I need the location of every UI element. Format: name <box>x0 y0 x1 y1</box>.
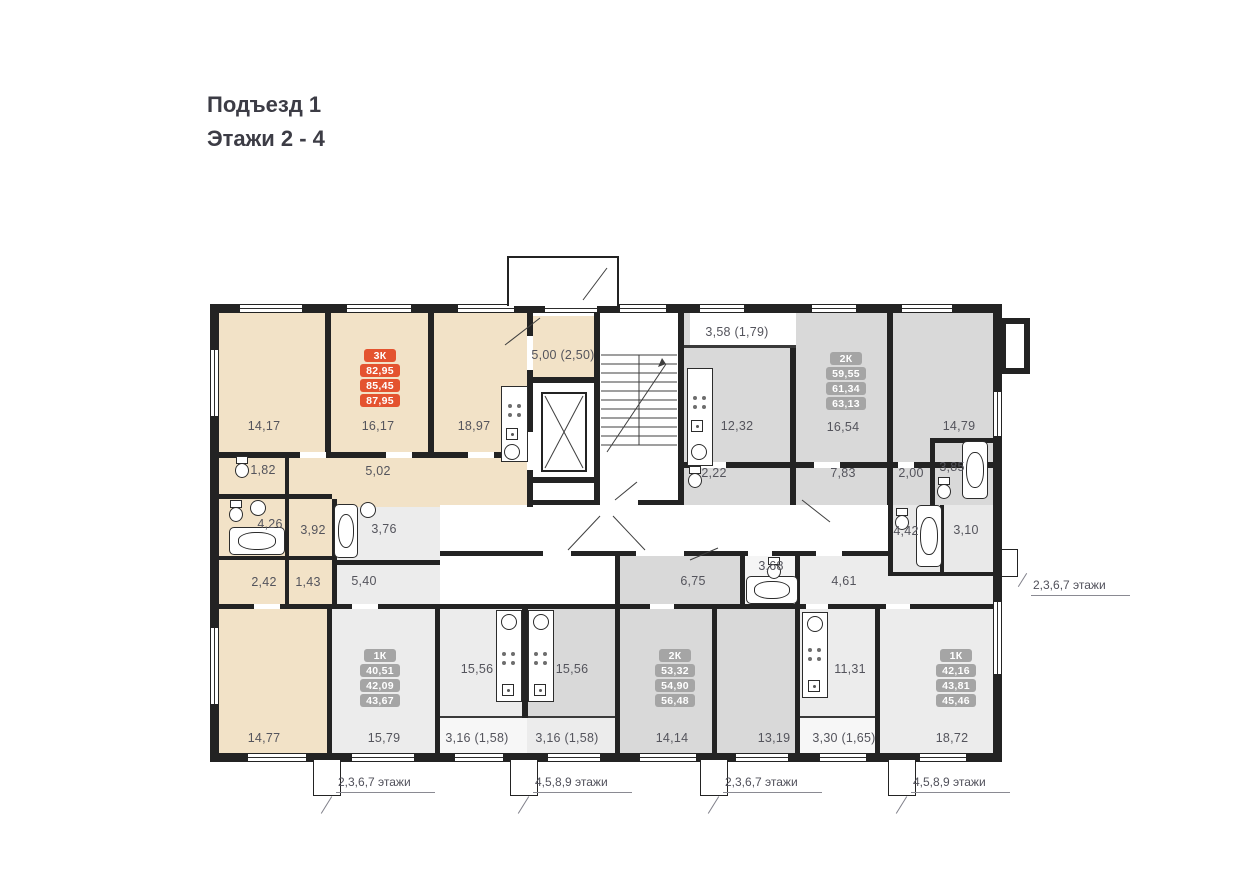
window <box>820 753 866 762</box>
apartment-area: 82,95 <box>360 364 400 377</box>
entrance-title: Подъезд 1 <box>207 88 325 122</box>
bathtub <box>916 505 942 567</box>
window <box>548 753 600 762</box>
apartment-type: 2К <box>830 352 862 365</box>
apartment-area: 42,16 <box>936 664 976 677</box>
stove-burners <box>808 648 812 652</box>
apartment-type: 2К <box>659 649 691 662</box>
door-opening <box>806 604 828 609</box>
window <box>920 753 966 762</box>
room-label: 5,40 <box>351 574 376 588</box>
wall <box>888 505 893 576</box>
floor-callout-label: 4,5,8,9 этажи <box>533 775 632 793</box>
window <box>352 753 414 762</box>
apartment-area: 40,51 <box>360 664 400 677</box>
room-label: 14,17 <box>248 419 281 433</box>
door-opening <box>543 551 571 556</box>
door-opening <box>816 551 842 556</box>
roof-outline-box <box>507 256 619 306</box>
room-label: 3,92 <box>300 523 325 537</box>
room-label: 4,61 <box>831 574 856 588</box>
wall <box>875 608 880 753</box>
callout-line <box>518 796 529 813</box>
apartment-type: 1К <box>940 649 972 662</box>
window <box>736 753 788 762</box>
room-label: 3,85 <box>939 460 964 474</box>
room-label: 1,43 <box>295 575 320 589</box>
door-opening <box>352 604 378 609</box>
wall <box>325 313 331 458</box>
room-label: 7,83 <box>830 466 855 480</box>
room-label: 5,02 <box>365 464 390 478</box>
window <box>620 304 666 313</box>
apartment-area: 42,09 <box>360 679 400 692</box>
wall <box>930 438 935 505</box>
balcony-rail <box>684 345 796 348</box>
bathtub <box>229 527 285 555</box>
room-label: 16,54 <box>827 420 860 434</box>
window <box>458 304 514 313</box>
wall <box>712 608 717 753</box>
room-label: 2,42 <box>251 575 276 589</box>
room-label: 14,79 <box>943 419 976 433</box>
apartment-badge-3k[interactable]: 3К 82,95 85,45 87,95 <box>360 349 400 407</box>
wall <box>332 560 440 565</box>
appliance <box>808 680 820 692</box>
window <box>455 753 503 762</box>
window <box>812 304 856 313</box>
apartment-area: 85,45 <box>360 379 400 392</box>
door-opening <box>254 604 280 609</box>
window <box>993 602 1002 674</box>
apartment-area: 54,90 <box>655 679 695 692</box>
apartment-type: 3К <box>364 349 396 362</box>
door-opening <box>468 452 494 458</box>
door-opening <box>386 452 412 458</box>
callout-line <box>321 796 332 813</box>
apartment-badge-2k-top[interactable]: 2К 59,55 61,34 63,13 <box>826 352 866 410</box>
callout-line <box>896 796 907 813</box>
wall <box>893 572 993 576</box>
apartment-type: 1К <box>364 649 396 662</box>
room-label: 18,72 <box>936 731 969 745</box>
floor-callout-label: 2,3,6,7 этажи <box>336 775 435 793</box>
shaft-box <box>1000 318 1030 374</box>
elevator-cab <box>541 392 587 472</box>
room-label: 11,31 <box>834 662 866 676</box>
bathtub <box>334 504 358 558</box>
sink <box>691 444 707 460</box>
balcony-rail <box>440 716 620 718</box>
wall <box>790 347 796 505</box>
floor-callout-label: 4,5,8,9 этажи <box>911 775 1010 793</box>
room-label: 12,32 <box>721 419 754 433</box>
wall <box>285 452 289 499</box>
floor-callout-label: 2,3,6,7 этажи <box>723 775 822 793</box>
wall <box>678 313 684 505</box>
stove-burners <box>693 396 697 400</box>
appliance <box>691 420 703 432</box>
floor-callout-label: 2,3,6,7 этажи <box>1031 578 1130 596</box>
wall <box>887 313 893 505</box>
room-label: 3,10 <box>953 523 978 537</box>
window <box>700 304 744 313</box>
door-opening <box>600 500 638 505</box>
door-opening <box>886 604 910 609</box>
wall <box>219 556 336 560</box>
room-label: 5,00 (2,50) <box>531 348 594 362</box>
apartment-badge-1k-right[interactable]: 1К 42,16 43,81 45,46 <box>936 649 976 707</box>
room-label: 18,97 <box>458 419 491 433</box>
page-title: Подъезд 1 Этажи 2 - 4 <box>207 88 325 156</box>
window <box>347 304 411 313</box>
wall <box>219 494 332 499</box>
window <box>902 304 952 313</box>
sink <box>807 616 823 632</box>
window <box>640 753 696 762</box>
room-label: 3,16 (1,58) <box>535 731 598 745</box>
corridor-area <box>440 556 620 608</box>
appliance <box>506 428 518 440</box>
bathtub <box>962 441 988 499</box>
apartment-area: 61,34 <box>826 382 866 395</box>
room-label: 2,22 <box>701 466 726 480</box>
window <box>210 628 219 704</box>
wall <box>527 477 600 483</box>
wall <box>527 377 600 383</box>
appliance <box>502 684 514 696</box>
callout-line <box>708 796 719 813</box>
room-label: 4,42 <box>893 524 918 538</box>
apartment-area: 45,46 <box>936 694 976 707</box>
sink <box>501 614 517 630</box>
room-label: 15,56 <box>556 662 589 676</box>
room-label: 4,26 <box>257 517 282 531</box>
floors-title: Этажи 2 - 4 <box>207 122 325 156</box>
window <box>240 304 302 313</box>
bathtub <box>746 576 798 604</box>
apartment-area: 53,32 <box>655 664 695 677</box>
wall <box>327 608 332 753</box>
wall <box>285 499 289 604</box>
apartment-area: 43,81 <box>936 679 976 692</box>
room-label: 15,56 <box>461 662 494 676</box>
window <box>993 392 1002 436</box>
apartment-area: 43,67 <box>360 694 400 707</box>
callout-line <box>1018 573 1027 587</box>
stove-burners <box>502 652 506 656</box>
apartment-area: 56,48 <box>655 694 695 707</box>
window <box>248 753 306 762</box>
toilet <box>228 500 244 522</box>
toilet <box>936 477 952 499</box>
sink <box>250 500 266 516</box>
room-label: 13,19 <box>758 731 791 745</box>
wall <box>740 556 745 608</box>
room-label: 3,76 <box>371 522 396 536</box>
stove-burners <box>508 404 512 408</box>
sink <box>533 614 549 630</box>
room-label: 15,79 <box>368 731 401 745</box>
room-label: 2,00 <box>898 466 923 480</box>
apartment-area: 63,13 <box>826 397 866 410</box>
apartment-badge-1k-left[interactable]: 1К 40,51 42,09 43,67 <box>360 649 400 707</box>
appliance <box>534 684 546 696</box>
balcony-outline-box <box>1002 549 1018 577</box>
door-opening <box>650 604 674 609</box>
apartment-badge-2k-bottom[interactable]: 2К 53,32 54,90 56,48 <box>655 649 695 707</box>
sink <box>360 502 376 518</box>
floor-plan-page: Подъезд 1 Этажи 2 - 4 <box>0 0 1238 877</box>
room-label: 14,77 <box>248 731 281 745</box>
room-label: 3,16 (1,58) <box>445 731 508 745</box>
room-label: 14,14 <box>656 731 689 745</box>
door-opening <box>748 551 772 556</box>
wall <box>435 608 440 753</box>
room-label: 3,30 (1,65) <box>812 731 875 745</box>
stove-burners <box>534 652 538 656</box>
room-label: 6,75 <box>680 574 705 588</box>
sink <box>504 444 520 460</box>
window <box>210 350 219 416</box>
apartment-area: 87,95 <box>360 394 400 407</box>
room-label: 3,58 (1,79) <box>705 325 768 339</box>
room-label: 1,82 <box>250 463 275 477</box>
wall <box>428 313 434 458</box>
room-label: 3,68 <box>758 559 783 573</box>
room-label: 16,17 <box>362 419 395 433</box>
wall <box>615 556 620 753</box>
door-opening <box>636 551 684 556</box>
toilet <box>234 456 250 478</box>
apartment-area: 59,55 <box>826 367 866 380</box>
door-opening <box>300 452 326 458</box>
balcony-rail <box>800 716 880 718</box>
corridor-area <box>440 505 893 556</box>
